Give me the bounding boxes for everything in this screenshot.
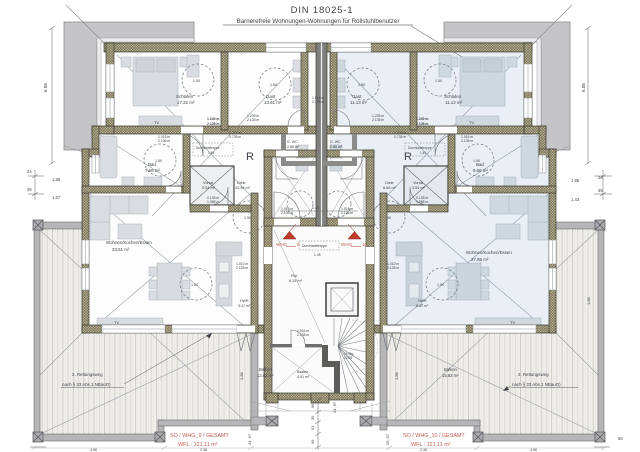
svg-text:24: 24 (27, 169, 32, 174)
svg-text:6.86: 6.86 (581, 83, 586, 92)
svg-text:1.45: 1.45 (312, 206, 319, 210)
svg-text:WHG: WHG (341, 242, 353, 247)
svg-text:1.45: 1.45 (208, 151, 214, 155)
svg-text:13.63 m²: 13.63 m² (257, 373, 274, 378)
svg-text:Vorrat: Vorrat (413, 181, 424, 185)
svg-text:5.54 m²: 5.54 m² (202, 186, 216, 190)
svg-text:35: 35 (598, 188, 603, 193)
svg-text:24, 67: 24, 67 (332, 401, 337, 413)
svg-text:Durchladetreppe: Durchladetreppe (302, 244, 327, 248)
svg-text:1.88: 1.88 (394, 371, 399, 380)
svg-text:0.735 m: 0.735 m (394, 135, 406, 139)
svg-text:1.50: 1.50 (270, 83, 277, 87)
svg-text:15.63 m²: 15.63 m² (442, 373, 459, 378)
svg-text:1.50: 1.50 (193, 79, 200, 83)
svg-text:24: 24 (598, 175, 603, 180)
svg-text:4.91 m²: 4.91 m² (297, 375, 310, 379)
svg-text:DIN 18025-1: DIN 18025-1 (291, 5, 354, 16)
svg-text:HWR: HWR (418, 299, 427, 303)
svg-text:2.38: 2.38 (200, 448, 207, 452)
svg-text:2.135 m: 2.135 m (461, 139, 473, 143)
svg-text:24, 67: 24, 67 (247, 433, 252, 445)
svg-text:SO / WHG_10 / GESAMT: SO / WHG_10 / GESAMT (403, 433, 465, 439)
svg-text:1.50: 1.50 (155, 159, 162, 163)
svg-text:G. WC: G. WC (330, 140, 341, 144)
svg-text:nach § 33 Abs.1 NBauO): nach § 33 Abs.1 NBauO) (62, 382, 111, 387)
svg-text:12.98 m²: 12.98 m² (235, 186, 251, 190)
svg-text:Durchladetreppe: Durchladetreppe (408, 146, 432, 150)
svg-text:26, 67: 26, 67 (385, 433, 390, 445)
svg-text:Wohnen/Kochen/Essen: Wohnen/Kochen/Essen (106, 240, 152, 245)
svg-text:8.68 m²: 8.68 m² (383, 186, 397, 190)
svg-text:51: 51 (310, 425, 315, 430)
svg-text:TV: TV (114, 320, 119, 325)
svg-text:4.56: 4.56 (90, 448, 97, 452)
svg-text:1.50: 1.50 (435, 79, 442, 83)
svg-text:1.085 m: 1.085 m (416, 200, 428, 204)
svg-text:Flur: Flur (291, 274, 298, 278)
svg-text:Barrierefreie Wohnungen-Wohnun: Barrierefreie Wohnungen-Wohnungen für Ro… (237, 18, 400, 25)
svg-text:1.240 m: 1.240 m (207, 117, 219, 121)
svg-text:1.95: 1.95 (571, 178, 580, 183)
svg-text:TV: TV (469, 120, 474, 125)
svg-text:2.86 m²: 2.86 m² (287, 145, 300, 149)
svg-text:Diele: Diele (385, 181, 394, 185)
svg-text:1.43: 1.43 (571, 197, 580, 202)
svg-text:Gast: Gast (266, 94, 276, 99)
svg-text:R: R (246, 151, 254, 163)
svg-text:1.45: 1.45 (314, 253, 321, 257)
svg-text:13.61 m²: 13.61 m² (264, 100, 282, 105)
svg-text:1.085 m: 1.085 m (207, 200, 219, 204)
svg-text:7.68 m²: 7.68 m² (145, 168, 160, 173)
svg-text:HWR: HWR (240, 299, 249, 303)
svg-text:SO / WHG_9 / GESAMT: SO / WHG_9 / GESAMT (170, 433, 229, 439)
svg-text:1.240 m: 1.240 m (416, 117, 428, 121)
svg-text:nach § 33 Abs.1 NBauO): nach § 33 Abs.1 NBauO) (512, 382, 561, 387)
svg-text:Schlafen: Schlafen (444, 94, 462, 99)
svg-text:Gast: Gast (352, 94, 362, 99)
svg-text:11.12 m²: 11.12 m² (445, 100, 463, 105)
svg-text:6.15 m²: 6.15 m² (289, 279, 303, 283)
svg-text:2.135 m: 2.135 m (341, 211, 353, 215)
svg-text:1.88: 1.88 (239, 371, 244, 380)
svg-text:5.47 m²: 5.47 m² (416, 304, 429, 308)
svg-text:35: 35 (310, 415, 315, 420)
svg-text:2.135 m: 2.135 m (247, 118, 259, 122)
svg-text:TV: TV (510, 320, 515, 325)
svg-text:4.56: 4.56 (530, 448, 537, 452)
svg-text:2.128 m: 2.128 m (416, 122, 428, 126)
svg-text:WFL : 121.11 m²: WFL : 121.11 m² (178, 442, 218, 448)
svg-text:Durchladetreppe: Durchladetreppe (196, 146, 220, 150)
svg-text:6.86: 6.86 (43, 83, 48, 92)
svg-text:2.135 m: 2.135 m (312, 100, 324, 104)
svg-text:33.51 m²: 33.51 m² (112, 247, 130, 252)
svg-text:9: 9 (297, 242, 300, 247)
svg-text:TV: TV (154, 120, 159, 125)
svg-text:2.38: 2.38 (420, 448, 427, 452)
svg-text:Vorrat: Vorrat (203, 181, 214, 185)
svg-text:WHG: WHG (276, 242, 288, 247)
svg-text:2.128 m: 2.128 m (207, 122, 219, 126)
svg-text:Balkon: Balkon (444, 367, 457, 372)
svg-text:Balkon: Balkon (259, 367, 272, 372)
svg-text:2.135 m: 2.135 m (372, 118, 384, 122)
svg-text:17/28: 17/28 (344, 356, 352, 360)
svg-text:WFL : 121.11 m²: WFL : 121.11 m² (411, 442, 451, 448)
svg-text:1.50: 1.50 (244, 216, 251, 220)
svg-text:11.13 m²: 11.13 m² (350, 100, 368, 105)
svg-text:1.88: 1.88 (586, 296, 591, 305)
svg-text:5.47 m²: 5.47 m² (238, 304, 251, 308)
svg-text:3.54 m²: 3.54 m² (412, 186, 426, 190)
svg-text:1.50: 1.50 (437, 283, 444, 287)
svg-text:2.135 m: 2.135 m (158, 139, 170, 143)
svg-text:2.135 m: 2.135 m (281, 211, 293, 215)
svg-text:Wohnen/Kochen/Essen: Wohnen/Kochen/Essen (466, 250, 512, 255)
svg-text:Diele: Diele (237, 181, 246, 185)
svg-text:96: 96 (310, 439, 315, 444)
svg-text:2.135 m: 2.135 m (387, 266, 399, 270)
svg-text:1.50: 1.50 (358, 83, 365, 87)
svg-text:2.135 m: 2.135 m (236, 266, 248, 270)
svg-text:0.735 m: 0.735 m (229, 135, 241, 139)
svg-text:36: 36 (27, 187, 32, 192)
svg-text:1.50: 1.50 (191, 283, 198, 287)
svg-text:2. Rettungsweg: 2. Rettungsweg (518, 372, 549, 377)
svg-text:58: 58 (618, 436, 623, 441)
svg-text:17.22 m²: 17.22 m² (177, 100, 195, 105)
svg-text:Bad: Bad (476, 162, 484, 167)
svg-text:1.45: 1.45 (420, 151, 426, 155)
svg-text:1.86: 1.86 (52, 177, 61, 182)
svg-text:9.66 m²: 9.66 m² (473, 168, 488, 173)
svg-text:Bastelr.: Bastelr. (297, 370, 309, 374)
svg-text:10: 10 (362, 242, 368, 247)
svg-text:1.57: 1.57 (52, 195, 61, 200)
svg-text:96: 96 (310, 403, 315, 408)
svg-text:G. WC: G. WC (287, 140, 298, 144)
svg-text:Schlafen: Schlafen (176, 94, 194, 99)
svg-text:2. Rettungsweg: 2. Rettungsweg (72, 372, 103, 377)
svg-text:Bad: Bad (148, 162, 156, 167)
svg-text:2.86 m²: 2.86 m² (330, 145, 343, 149)
svg-text:27.88 m²: 27.88 m² (471, 257, 489, 262)
svg-text:2.135 m: 2.135 m (297, 333, 309, 337)
